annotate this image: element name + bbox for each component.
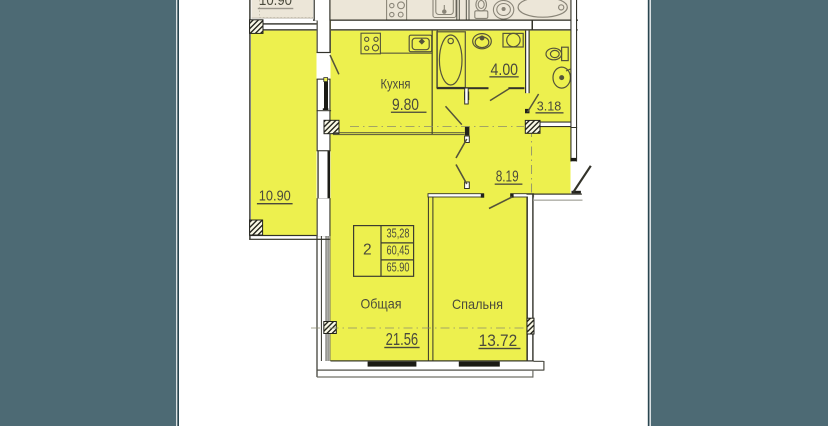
- svg-text:Спальня: Спальня: [452, 296, 503, 312]
- svg-text:60,45: 60,45: [387, 243, 410, 258]
- svg-text:9.80: 9.80: [392, 95, 419, 114]
- svg-text:21.56: 21.56: [386, 329, 419, 349]
- svg-text:8.19: 8.19: [496, 169, 519, 186]
- svg-text:Кухня: Кухня: [381, 77, 411, 92]
- svg-text:65.90: 65.90: [387, 260, 410, 275]
- svg-text:13.72: 13.72: [479, 332, 518, 350]
- svg-text:10.90: 10.90: [259, 187, 291, 204]
- svg-text:10.90: 10.90: [259, 0, 292, 9]
- svg-text:Общая: Общая: [361, 296, 402, 312]
- svg-text:2: 2: [363, 242, 372, 259]
- svg-text:35,28: 35,28: [387, 226, 410, 241]
- svg-text:3.18: 3.18: [537, 100, 562, 114]
